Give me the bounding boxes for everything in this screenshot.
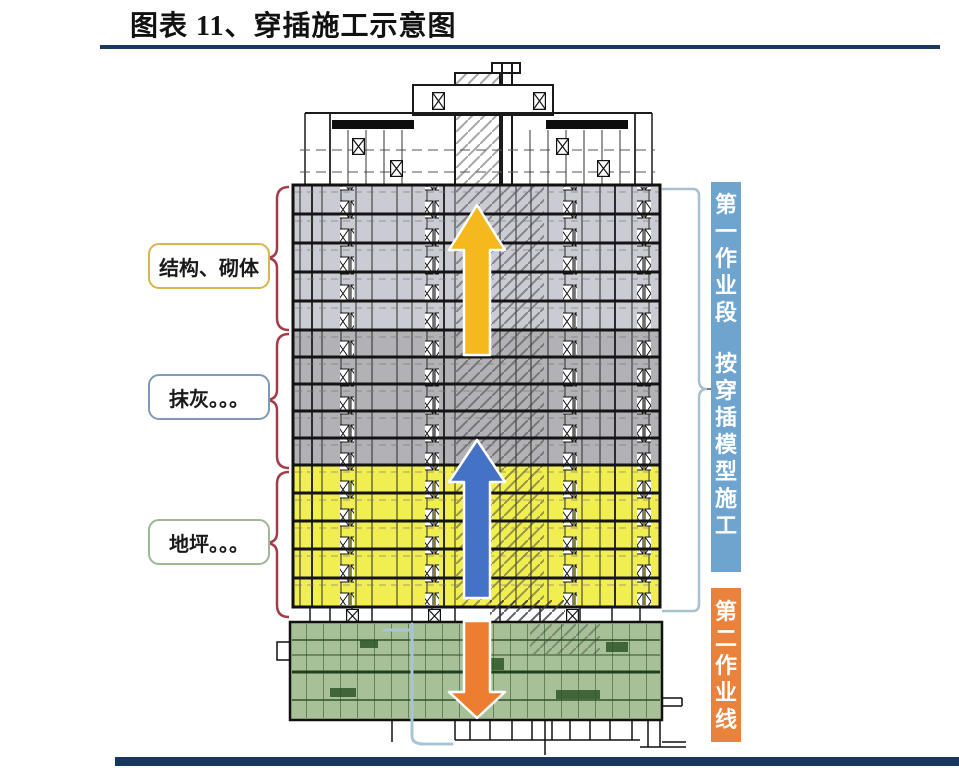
right-bracket: [662, 189, 713, 611]
report-figure-page: 图表 11、穿插施工示意图: [0, 0, 959, 768]
callout-plastering-label: 抹灰。。。: [169, 383, 249, 412]
basement-lines: [392, 720, 686, 755]
section2-title: 第二作业线: [711, 598, 741, 733]
section1-subtitle: 按穿插模型施工: [711, 350, 741, 539]
callout-structure-masonry: 结构、砌体: [148, 243, 270, 289]
page-bottom-bar: [115, 757, 959, 766]
annotation-bar-section2: 第二作业线: [711, 588, 741, 742]
callout-structure-label: 结构、砌体: [159, 252, 259, 281]
callout-flooring-label: 地坪。。。: [169, 528, 249, 557]
callout-flooring: 地坪。。。: [148, 519, 270, 565]
section1-title: 第一作业段: [711, 191, 741, 326]
annotation-bar-section1: 第一作业段 按穿插模型施工: [711, 182, 741, 572]
roof-structure: [300, 63, 655, 185]
building-section-drawing: [0, 0, 959, 768]
callout-plastering: 抹灰。。。: [148, 374, 270, 420]
